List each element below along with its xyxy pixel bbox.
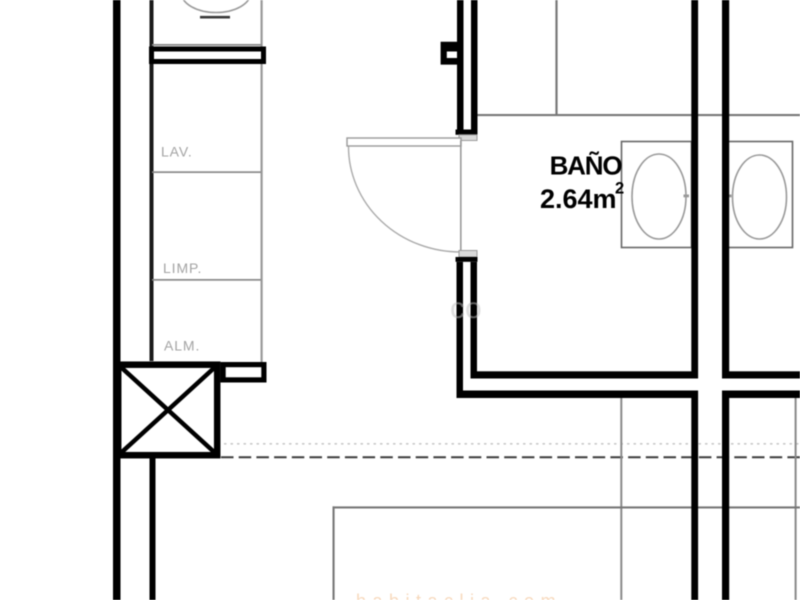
svg-text:2: 2 xyxy=(615,180,624,198)
svg-text:co: co xyxy=(450,292,482,325)
svg-text:2.64m: 2.64m xyxy=(540,184,617,214)
svg-text:BAÑO: BAÑO xyxy=(550,151,623,181)
svg-text:LIMP.: LIMP. xyxy=(163,260,202,276)
svg-text:ALM.: ALM. xyxy=(164,338,200,354)
svg-text:habitaclia.com: habitaclia.com xyxy=(356,591,562,600)
svg-text:LAV.: LAV. xyxy=(161,144,193,160)
